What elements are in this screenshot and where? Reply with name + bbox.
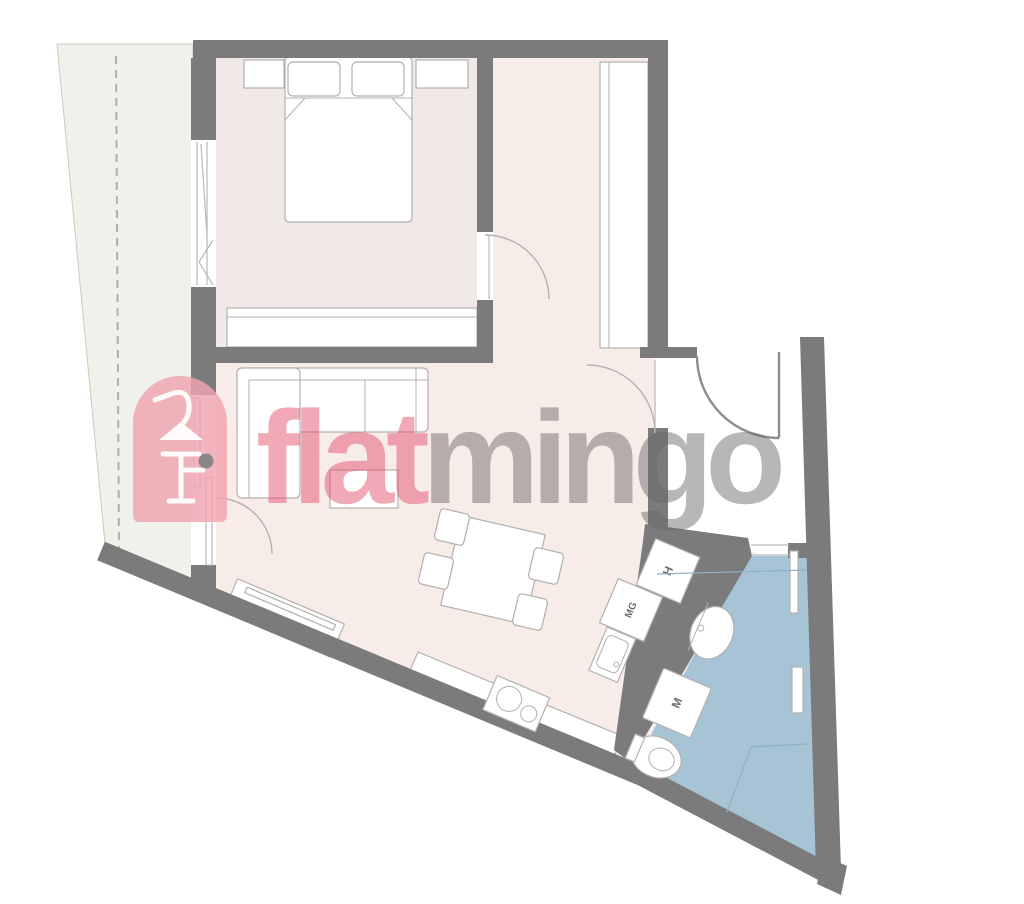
dining-chair [418, 552, 454, 590]
nightstand-right [416, 60, 468, 88]
bedroom-wardrobe [227, 308, 477, 347]
bedroom-window [191, 140, 216, 287]
pillow-left [288, 62, 340, 96]
logo-wordmark: flatmingo [256, 392, 778, 552]
hall-closet [600, 62, 648, 348]
pillow-right [352, 62, 404, 96]
dining-chair [528, 547, 564, 585]
radiator [792, 667, 803, 713]
logo-text-flat: flat [256, 384, 422, 531]
logo-text-mingo: mingo [422, 384, 778, 531]
floor-plan: MG H M flatmingo [0, 0, 1024, 904]
nightstand-left [244, 60, 284, 88]
dining-chair [512, 593, 548, 631]
flamingo-icon [133, 376, 227, 522]
